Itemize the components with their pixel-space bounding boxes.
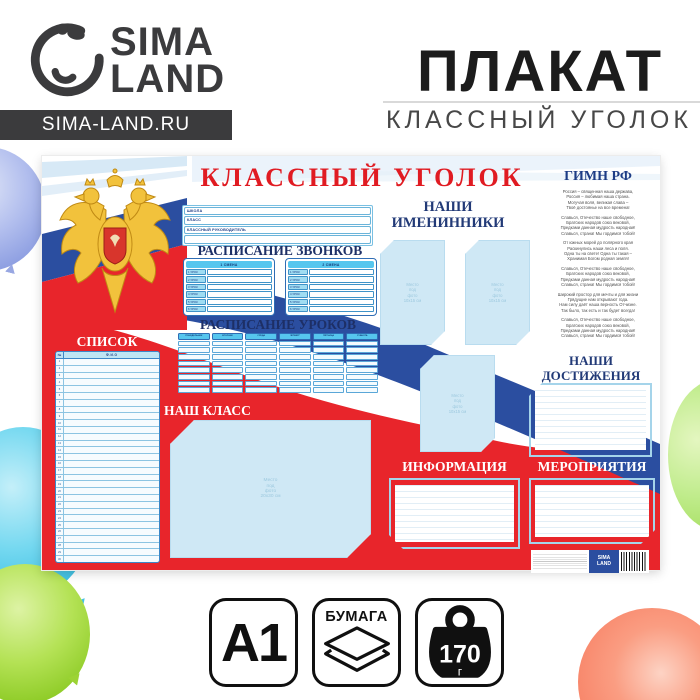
- polar-bear-logo-icon: [28, 20, 108, 104]
- class-list-row: 3: [56, 373, 159, 380]
- product-photo: SIMA LAND SIMA-LAND.RU ПЛАКАТ КЛАССНЫЙ У…: [0, 0, 700, 700]
- class-list-header: № Ф. И. О: [56, 352, 159, 359]
- teacher-field: КЛАССНЫЙ РУКОВОДИТЕЛЬ: [184, 226, 371, 234]
- class-list-row: 12: [56, 434, 159, 441]
- bell-lesson-label: 2 УРОК: [288, 276, 308, 282]
- row-name-cell: [64, 420, 159, 426]
- format-badge: А1: [209, 598, 298, 687]
- class-list: № Ф. И. О 123456789101112131415161718192…: [55, 351, 160, 563]
- row-name-cell: [64, 495, 159, 501]
- row-name-cell: [64, 427, 159, 433]
- anthem-stanza: Россия – священная наша держава,Россия –…: [534, 189, 662, 211]
- timetable-cell: [346, 381, 378, 387]
- bell-row: 3 УРОК: [186, 284, 272, 290]
- row-name-cell: [64, 543, 159, 549]
- timetable-cell: [178, 341, 210, 347]
- row-name-cell: [64, 373, 159, 379]
- timetable-cell: [346, 361, 378, 367]
- timetable-cell: [279, 341, 311, 347]
- bell-time-cell: [309, 269, 374, 275]
- row-name-cell: [64, 549, 159, 555]
- timetable-day-column: ПЯТНИЦА: [313, 333, 345, 400]
- row-name-cell: [64, 359, 159, 365]
- row-number: 30: [56, 556, 64, 562]
- class-list-row: 30: [56, 556, 159, 563]
- anthem-stanza: Славься, Отечество наше свободное,Братск…: [534, 266, 662, 288]
- bell-row: 5 УРОК: [186, 299, 272, 305]
- timetable-cell: [212, 374, 244, 380]
- timetable-cell: [245, 347, 277, 353]
- row-number: 11: [56, 427, 64, 433]
- class-list-row: 13: [56, 441, 159, 448]
- timetable: ПОНЕДЕЛЬНИКВТОРНИКСРЕДАЧЕТВЕРГПЯТНИЦАСУБ…: [178, 333, 378, 400]
- timetable-day-column: СУББОТА: [346, 333, 378, 400]
- row-number: 26: [56, 529, 64, 535]
- class-field: КЛАСС: [184, 216, 371, 224]
- balloon: [668, 380, 700, 530]
- bell-shift-table: 2 СМЕНА1 УРОК2 УРОК3 УРОК4 УРОК5 УРОК6 У…: [285, 258, 377, 316]
- row-number: 24: [56, 515, 64, 521]
- format-label: А1: [221, 612, 286, 674]
- bell-time-cell: [309, 276, 374, 282]
- row-number: 25: [56, 522, 64, 528]
- timetable-cell: [346, 374, 378, 380]
- timetable-cell: [245, 381, 277, 387]
- row-number: 18: [56, 475, 64, 481]
- row-name-cell: [64, 529, 159, 535]
- row-name-cell: [64, 379, 159, 385]
- timetable-cell: [178, 381, 210, 387]
- our-class-title: НАШ КЛАСС: [164, 403, 284, 419]
- col-name: Ф. И. О: [64, 352, 159, 358]
- timetable-cell: [279, 354, 311, 360]
- bells-title: РАСПИСАНИЕ ЗВОНКОВ: [172, 243, 388, 259]
- anthem-text: Россия – священная наша держава,Россия –…: [534, 189, 662, 343]
- class-list-row: 16: [56, 461, 159, 468]
- title-divider: [383, 101, 700, 103]
- class-list-row: 11: [56, 427, 159, 434]
- bell-row: 5 УРОК: [288, 299, 374, 305]
- class-list-row: 9: [56, 413, 159, 420]
- bell-row: 1 УРОК: [288, 269, 374, 275]
- row-number: 8: [56, 407, 64, 413]
- row-name-cell: [64, 536, 159, 542]
- bell-lesson-label: 3 УРОК: [288, 284, 308, 290]
- class-list-row: 27: [56, 536, 159, 543]
- bell-row: 2 УРОК: [186, 276, 272, 282]
- timetable-cell: [212, 381, 244, 387]
- timetable-cell: [245, 341, 277, 347]
- row-name-cell: [64, 481, 159, 487]
- class-list-row: 17: [56, 468, 159, 475]
- birthdays-title: НАШИ ИМЕНИННИКИ: [378, 199, 518, 231]
- timetable-cell: [313, 347, 345, 353]
- row-name-cell: [64, 393, 159, 399]
- class-list-row: 15: [56, 454, 159, 461]
- paper-label: БУМАГА: [325, 609, 387, 625]
- class-list-row: 1: [56, 359, 159, 366]
- bell-lesson-label: 6 УРОК: [186, 306, 206, 312]
- anthem-stanza: Славься, Отечество наше свободное,Братск…: [534, 215, 662, 237]
- bell-lesson-label: 1 УРОК: [288, 269, 308, 275]
- timetable-cell: [178, 387, 210, 393]
- bell-lesson-label: 4 УРОК: [186, 291, 206, 297]
- timetable-cell: [346, 341, 378, 347]
- timetable-cell: [279, 374, 311, 380]
- poster: КЛАССНЫЙ УГОЛОК ГИМН РФ Россия – священн…: [42, 156, 660, 570]
- timetable-day-header: ВТОРНИК: [212, 333, 244, 340]
- class-list-row: 4: [56, 379, 159, 386]
- class-list-row: 26: [56, 529, 159, 536]
- row-number: 19: [56, 481, 64, 487]
- kettlebell-icon: 170 г: [423, 604, 497, 682]
- timetable-day-column: ПОНЕДЕЛЬНИК: [178, 333, 210, 400]
- barcode-label: SIMA LAND: [531, 550, 649, 573]
- brand-line1: SIMA: [110, 24, 225, 61]
- row-number: 10: [56, 420, 64, 426]
- anthem-title: ГИМН РФ: [539, 169, 657, 185]
- bell-time-cell: [207, 269, 272, 275]
- product-subtitle: КЛАССНЫЙ УГОЛОК: [378, 106, 700, 135]
- class-list-row: 14: [56, 447, 159, 454]
- timetable-cell: [245, 367, 277, 373]
- timetable-cell: [245, 354, 277, 360]
- col-number: №: [56, 352, 64, 358]
- timetable-cell: [346, 347, 378, 353]
- row-name-cell: [64, 502, 159, 508]
- bell-time-cell: [207, 291, 272, 297]
- row-number: 20: [56, 488, 64, 494]
- paper-sheets-icon: [322, 625, 392, 677]
- bell-time-cell: [309, 291, 374, 297]
- class-list-row: 29: [56, 549, 159, 556]
- row-number: 17: [56, 468, 64, 474]
- timetable-cell: [346, 354, 378, 360]
- brand-line2: LAND: [110, 61, 225, 98]
- bell-shift-table: 1 СМЕНА1 УРОК2 УРОК3 УРОК4 УРОК5 УРОК6 У…: [183, 258, 275, 316]
- photo-placeholder: Место под фото 20х30 см: [170, 420, 371, 558]
- row-name-cell: [64, 468, 159, 474]
- timetable-cell: [245, 361, 277, 367]
- photo-placeholder: Место под фото 10х15 см: [380, 240, 445, 345]
- bell-lesson-label: 6 УРОК: [288, 306, 308, 312]
- class-list-row: 5: [56, 386, 159, 393]
- class-list-row: 7: [56, 400, 159, 407]
- row-number: 23: [56, 509, 64, 515]
- bell-row: 3 УРОК: [288, 284, 374, 290]
- timetable-day-header: ПЯТНИЦА: [313, 333, 345, 340]
- achievements-title: НАШИ ДОСТИЖЕНИЯ: [526, 354, 656, 383]
- row-name-cell: [64, 475, 159, 481]
- timetable-cell: [313, 354, 345, 360]
- row-name-cell: [64, 454, 159, 460]
- bell-lesson-label: 5 УРОК: [288, 299, 308, 305]
- class-list-row: 19: [56, 481, 159, 488]
- mini-brand-logo: SIMA LAND: [589, 550, 619, 573]
- information-title: ИНФОРМАЦИЯ: [389, 459, 520, 475]
- weight-badge: 170 г: [415, 598, 504, 687]
- row-name-cell: [64, 434, 159, 440]
- bell-time-cell: [309, 284, 374, 290]
- photo-placeholder: Место под фото 10х15 см: [465, 240, 530, 345]
- row-name-cell: [64, 386, 159, 392]
- class-list-row: 21: [56, 495, 159, 502]
- anthem-stanza: От южных морей до полярного краяРаскинул…: [534, 240, 662, 262]
- timetable-cell: [212, 387, 244, 393]
- row-name-cell: [64, 461, 159, 467]
- timetable-cell: [212, 354, 244, 360]
- row-number: 7: [56, 400, 64, 406]
- timetable-cell: [279, 361, 311, 367]
- row-number: 29: [56, 549, 64, 555]
- bell-lesson-label: 4 УРОК: [288, 291, 308, 297]
- timetable-cell: [313, 381, 345, 387]
- bell-time-cell: [207, 299, 272, 305]
- bell-shift-header: 2 СМЕНА: [288, 261, 374, 268]
- row-number: 9: [56, 413, 64, 419]
- timetable-cell: [178, 361, 210, 367]
- bell-row: 1 УРОК: [186, 269, 272, 275]
- timetable-cell: [178, 347, 210, 353]
- timetable-cell: [178, 354, 210, 360]
- bells-tables: 1 СМЕНА1 УРОК2 УРОК3 УРОК4 УРОК5 УРОК6 У…: [183, 258, 377, 316]
- class-list-row: 23: [56, 509, 159, 516]
- row-number: 15: [56, 454, 64, 460]
- achievements-box: [529, 383, 652, 457]
- row-name-cell: [64, 447, 159, 453]
- bell-lesson-label: 2 УРОК: [186, 276, 206, 282]
- class-list-row: 25: [56, 522, 159, 529]
- timetable-cell: [279, 347, 311, 353]
- balloon: [578, 608, 700, 700]
- row-number: 4: [56, 379, 64, 385]
- row-number: 3: [56, 373, 64, 379]
- row-number: 27: [56, 536, 64, 542]
- class-list-row: 20: [56, 488, 159, 495]
- russia-coat-of-arms-icon: [54, 168, 176, 318]
- row-name-cell: [64, 407, 159, 413]
- information-box: [389, 478, 520, 549]
- row-number: 28: [56, 543, 64, 549]
- timetable-cell: [313, 374, 345, 380]
- timetable-cell: [178, 374, 210, 380]
- bell-row: 4 УРОК: [288, 291, 374, 297]
- timetable-cell: [313, 341, 345, 347]
- bell-row: 6 УРОК: [288, 306, 374, 312]
- timetable-cell: [245, 387, 277, 393]
- row-name-cell: [64, 400, 159, 406]
- bell-lesson-label: 1 УРОК: [186, 269, 206, 275]
- class-list-row: 18: [56, 475, 159, 482]
- row-number: 16: [56, 461, 64, 467]
- timetable-cell: [279, 367, 311, 373]
- row-name-cell: [64, 556, 159, 562]
- timetable-cell: [212, 347, 244, 353]
- timetable-cell: [245, 374, 277, 380]
- row-number: 21: [56, 495, 64, 501]
- row-number: 1: [56, 359, 64, 365]
- timetable-day-column: ЧЕТВЕРГ: [279, 333, 311, 400]
- school-field: ШКОЛА: [184, 207, 371, 215]
- class-list-row: 22: [56, 502, 159, 509]
- balloon: [0, 147, 46, 271]
- bell-row: 2 УРОК: [288, 276, 374, 282]
- row-number: 22: [56, 502, 64, 508]
- timetable-cell: [178, 367, 210, 373]
- timetable-day-header: СРЕДА: [245, 333, 277, 340]
- row-number: 14: [56, 447, 64, 453]
- events-box: [529, 478, 655, 544]
- timetable-day-header: ПОНЕДЕЛЬНИК: [178, 333, 210, 340]
- product-title: ПЛАКАТ: [380, 38, 700, 105]
- timetable-cell: [346, 367, 378, 373]
- row-name-cell: [64, 413, 159, 419]
- bell-shift-header: 1 СМЕНА: [186, 261, 272, 268]
- photo-placeholder: Место под фото 10х15 см: [420, 355, 495, 452]
- school-info-box: ШКОЛА КЛАСС КЛАССНЫЙ РУКОВОДИТЕЛЬ: [182, 205, 373, 246]
- class-list-row: 24: [56, 515, 159, 522]
- timetable-day-column: СРЕДА: [245, 333, 277, 400]
- weight-unit: г: [457, 664, 462, 678]
- row-number: 5: [56, 386, 64, 392]
- paper-badge: БУМАГА: [312, 598, 401, 687]
- class-list-row: 10: [56, 420, 159, 427]
- bell-time-cell: [207, 284, 272, 290]
- timetable-cell: [212, 341, 244, 347]
- bell-time-cell: [207, 306, 272, 312]
- site-url-bar: SIMA-LAND.RU: [0, 110, 232, 140]
- timetable-cell: [279, 387, 311, 393]
- bell-time-cell: [309, 306, 374, 312]
- row-number: 2: [56, 366, 64, 372]
- timetable-cell: [212, 367, 244, 373]
- timetable-cell: [313, 361, 345, 367]
- class-list-row: 6: [56, 393, 159, 400]
- bell-time-cell: [207, 276, 272, 282]
- timetable-cell: [212, 361, 244, 367]
- timetable-day-header: ЧЕТВЕРГ: [279, 333, 311, 340]
- barcode-icon: [621, 552, 647, 571]
- class-list-row: 2: [56, 366, 159, 373]
- timetable-day-column: ВТОРНИК: [212, 333, 244, 400]
- anthem-stanza: Славься, Отечество наше свободное,Братск…: [534, 317, 662, 339]
- bell-lesson-label: 3 УРОК: [186, 284, 206, 290]
- timetable-cell: [313, 387, 345, 393]
- row-number: 6: [56, 393, 64, 399]
- timetable-title: РАСПИСАНИЕ УРОКОВ: [168, 317, 388, 333]
- timetable-cell: [346, 387, 378, 393]
- row-name-cell: [64, 522, 159, 528]
- poster-title: КЛАССНЫЙ УГОЛОК: [162, 163, 562, 193]
- timetable-cell: [279, 381, 311, 387]
- anthem-stanza: Широкий простор для мечты и для жизниГря…: [534, 292, 662, 314]
- row-name-cell: [64, 509, 159, 515]
- bell-lesson-label: 5 УРОК: [186, 299, 206, 305]
- timetable-cell: [313, 367, 345, 373]
- events-title: МЕРОПРИЯТИЯ: [529, 459, 655, 475]
- timetable-day-header: СУББОТА: [346, 333, 378, 340]
- row-name-cell: [64, 441, 159, 447]
- bell-row: 6 УРОК: [186, 306, 272, 312]
- row-number: 13: [56, 441, 64, 447]
- class-list-row: 28: [56, 543, 159, 550]
- fine-print: [533, 553, 587, 570]
- bell-row: 4 УРОК: [186, 291, 272, 297]
- row-number: 12: [56, 434, 64, 440]
- row-name-cell: [64, 366, 159, 372]
- class-list-rows: 1234567891011121314151617181920212223242…: [56, 359, 159, 563]
- row-name-cell: [64, 515, 159, 521]
- row-name-cell: [64, 488, 159, 494]
- brand-wordmark: SIMA LAND: [110, 24, 225, 98]
- bell-time-cell: [309, 299, 374, 305]
- class-list-row: 8: [56, 407, 159, 414]
